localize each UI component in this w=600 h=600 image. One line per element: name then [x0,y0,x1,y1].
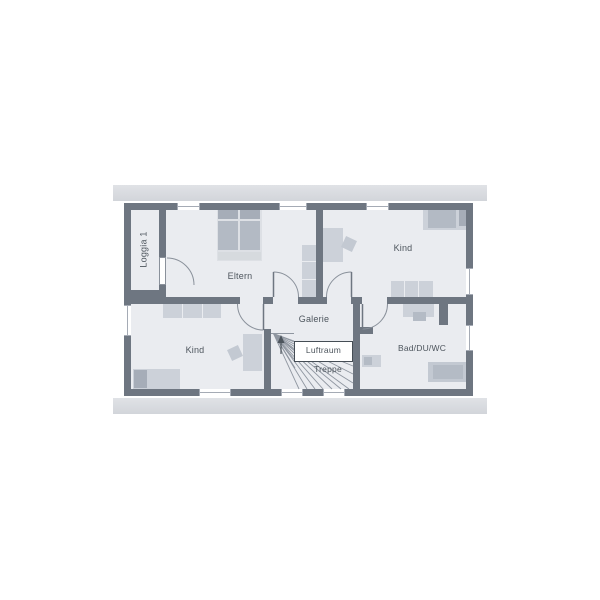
bed-pillow [240,209,260,219]
wall-mid [351,297,362,304]
bed-kind-bottom [133,369,180,389]
wardrobe-eltern [302,280,316,297]
luftraum-void: Luftraum [294,341,353,362]
roof-band-top [113,185,487,201]
window-bottom-2 [281,389,303,396]
wall-loggia-right [159,203,166,257]
desk-kind-top [323,228,343,262]
wall-loggia-bottom [124,290,166,297]
roof-band-bottom [113,398,487,414]
wall-outer-left [124,203,131,396]
bed-pillow [218,209,238,219]
door-panel-loggia [159,257,166,285]
wardrobe-kind-bottom [183,302,202,318]
wardrobe-eltern [302,245,316,261]
room-label-luftraum: Luftraum [295,342,352,359]
window-bottom-1 [199,389,231,396]
bed-pillow [134,370,147,388]
window-top-1 [177,203,200,210]
bed-duvet [218,221,238,250]
wardrobe-eltern [302,262,316,279]
bathtub-inner [433,365,463,379]
wall-bad-stub-right [439,304,448,325]
room-label-treppe: Treppe [298,364,358,375]
room-label-bad: Bad/DU/WC [387,343,457,354]
wardrobe-kind-bottom [203,302,221,318]
wall-bad-stub [353,327,373,334]
wardrobe-kind-bottom [163,302,182,318]
bed-duvet [240,221,260,250]
room-label-loggia: Loggia 1 [139,222,150,278]
window-right-1 [466,268,473,295]
wall-mid [298,297,327,304]
bed-duvet [428,209,456,228]
dresser-kind-top [405,281,418,297]
desk-kind-bottom [243,334,262,371]
wall-outer-right [466,203,473,396]
floor-plan: Luftraum Loggia 1 Eltern Kind Kind Galer… [0,0,600,600]
room-label-eltern: Eltern [215,271,265,282]
window-left [124,305,131,336]
wall-mid [131,297,240,304]
wall-mid [387,297,466,304]
toilet-bowl [364,357,372,365]
bed-foot [218,252,261,260]
bed-kind-top [423,207,468,230]
dresser-kind-top [419,281,433,297]
dresser-kind-top [391,281,404,297]
wall-mid [263,297,273,304]
wall-stairs-left [264,329,271,389]
window-right-2 [466,325,473,351]
room-label-kind-top: Kind [378,243,428,254]
window-bottom-3 [323,389,345,396]
room-label-kind-bottom: Kind [170,345,220,356]
bed-eltern [217,207,262,261]
wall-bad-left [353,304,360,389]
sink-basin [413,312,426,321]
wall-eltern-kind [316,203,323,297]
room-label-galerie: Galerie [284,314,344,325]
window-top-2 [279,203,307,210]
window-top-3 [366,203,389,210]
